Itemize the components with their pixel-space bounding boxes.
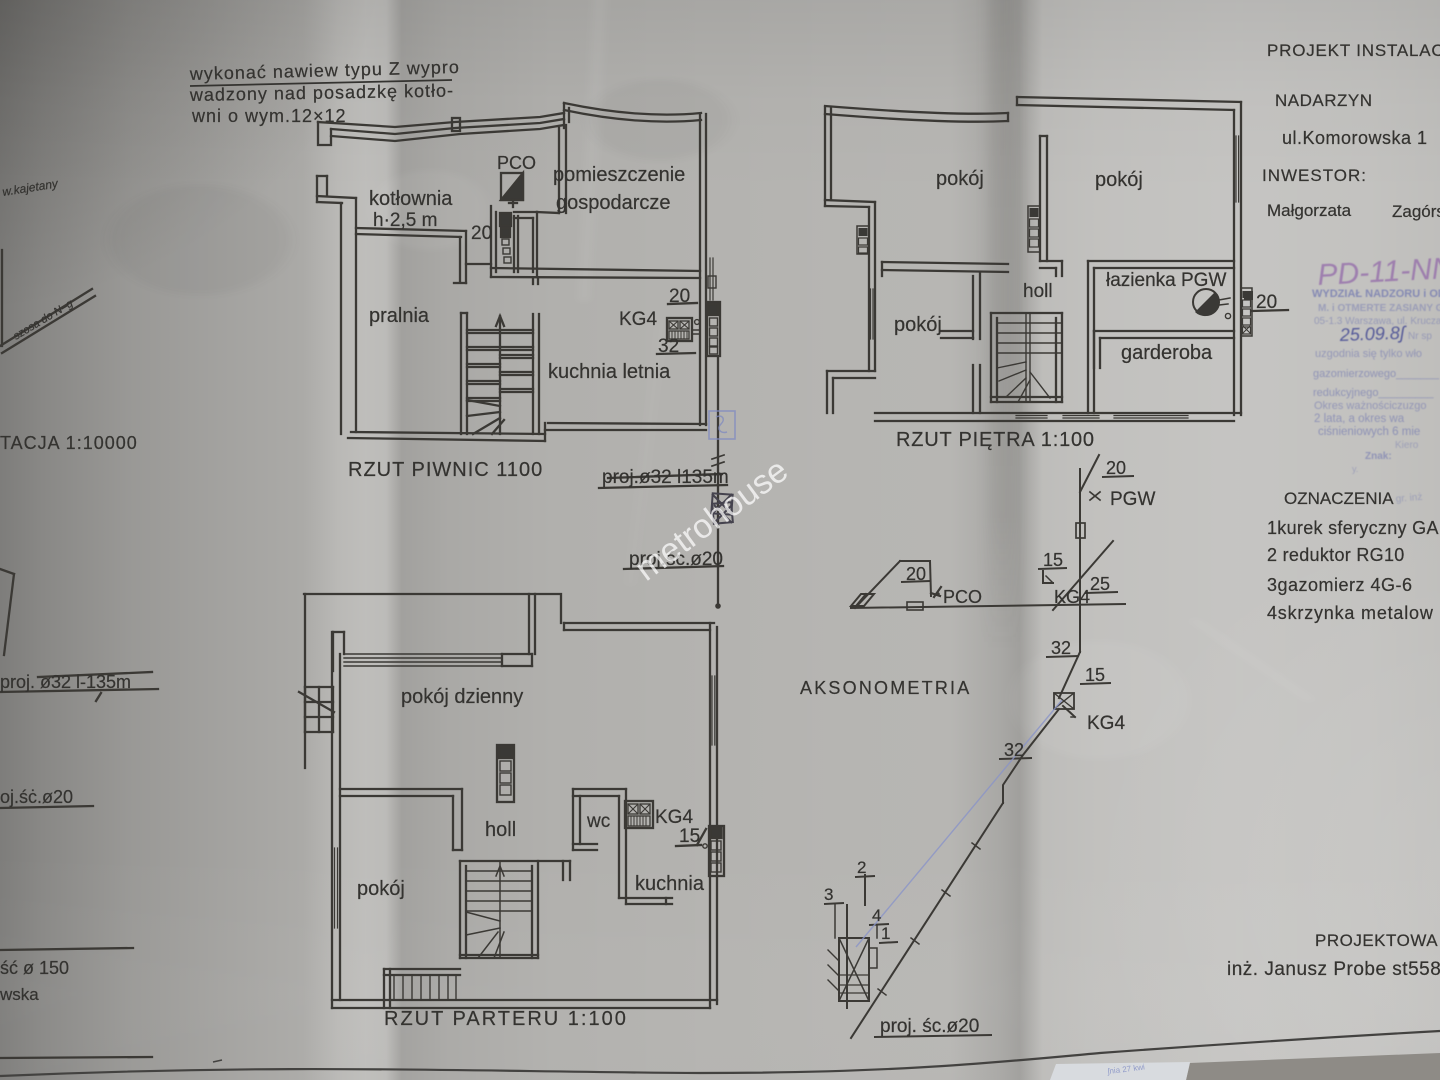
svg-text:15: 15 xyxy=(679,826,700,847)
svg-text:pralnia: pralnia xyxy=(369,305,430,327)
svg-text:pokój: pokój xyxy=(357,878,405,900)
svg-text:20: 20 xyxy=(906,564,926,584)
svg-text:h·2,5 m: h·2,5 m xyxy=(373,210,437,231)
svg-text:holl: holl xyxy=(485,819,516,841)
svg-text:Małgorzata: Małgorzata xyxy=(1267,201,1352,220)
svg-text:1kurek sferyczny GA: 1kurek sferyczny GA xyxy=(1267,518,1439,538)
svg-text:PGW: PGW xyxy=(1110,489,1155,510)
svg-text:25: 25 xyxy=(1090,574,1110,594)
svg-text:holl: holl xyxy=(1023,281,1053,302)
svg-text:25.09.8ʃ: 25.09.8ʃ xyxy=(1338,323,1408,345)
svg-text:PROJEKTOWA: PROJEKTOWA xyxy=(1315,931,1438,950)
svg-text:ść ø 150: ść ø 150 xyxy=(0,958,69,978)
svg-text:gospodarcze: gospodarcze xyxy=(556,192,671,214)
svg-text:inż. Janusz Probe st558: inż. Janusz Probe st558 xyxy=(1227,959,1440,980)
svg-text:wc: wc xyxy=(586,811,610,832)
svg-text:20: 20 xyxy=(1106,458,1126,478)
svg-text:pokój: pokój xyxy=(1095,169,1143,191)
svg-text:INWESTOR:: INWESTOR: xyxy=(1262,166,1367,185)
svg-text:PROJEKT INSTALAC: PROJEKT INSTALAC xyxy=(1267,41,1440,60)
svg-text:RZUT PARTERU 1:100: RZUT PARTERU 1:100 xyxy=(384,1008,628,1030)
svg-text:32: 32 xyxy=(1004,740,1024,760)
svg-text:kuchnia: kuchnia xyxy=(635,873,705,895)
svg-text:łazienka PGW: łazienka PGW xyxy=(1106,270,1226,291)
svg-text:pomieszczenie: pomieszczenie xyxy=(553,164,685,186)
svg-text:WYDZIAŁ NADZORU i ODK: WYDZIAŁ NADZORU i ODK xyxy=(1312,288,1440,300)
svg-text:PCO: PCO xyxy=(943,587,982,607)
svg-text:garderoba: garderoba xyxy=(1121,342,1213,364)
svg-text:gazomierzowego_______: gazomierzowego_______ xyxy=(1313,368,1440,380)
svg-text:4skrzynka metalow: 4skrzynka metalow xyxy=(1267,603,1434,623)
svg-text:gr. inż: gr. inż xyxy=(1395,492,1423,505)
svg-text:pokój: pokój xyxy=(894,314,942,336)
svg-text:3gazomierz 4G-6: 3gazomierz 4G-6 xyxy=(1267,575,1413,595)
svg-text:2 reduktor RG10: 2 reduktor RG10 xyxy=(1267,545,1405,565)
svg-text:4: 4 xyxy=(872,906,881,925)
svg-text:szosa do N–g: szosa do N–g xyxy=(11,297,76,342)
svg-text:PD-11-NN: PD-11-NN xyxy=(1317,252,1440,292)
svg-text:15: 15 xyxy=(1085,665,1105,685)
svg-text:y.: y. xyxy=(1352,464,1358,474)
svg-text:kotłownia: kotłownia xyxy=(369,188,453,210)
svg-text:pokój: pokój xyxy=(936,168,984,190)
svg-text:32: 32 xyxy=(1051,638,1071,658)
svg-text:1: 1 xyxy=(881,924,890,943)
svg-text:wadzony nad posadzkę kotło-: wadzony nad posadzkę kotło- xyxy=(189,80,454,105)
svg-text:ciśnieniowych 6 mie: ciśnieniowych 6 mie xyxy=(1318,426,1420,438)
svg-text:3: 3 xyxy=(824,885,833,904)
svg-text:KG4: KG4 xyxy=(619,309,657,330)
svg-text:proj. ø32 l-135m: proj. ø32 l-135m xyxy=(0,672,131,692)
svg-text:redukcyjnego_________: redukcyjnego_________ xyxy=(1313,387,1434,399)
svg-text:TACJA 1:10000: TACJA 1:10000 xyxy=(0,433,138,453)
svg-text:kuchnia letnia: kuchnia letnia xyxy=(548,361,671,383)
svg-text:proj. śc.ø20: proj. śc.ø20 xyxy=(880,1016,979,1037)
svg-text:ul.Komorowska 1: ul.Komorowska 1 xyxy=(1282,128,1428,148)
svg-text:oj.śċ.ø20: oj.śċ.ø20 xyxy=(0,787,73,807)
svg-text:2 lata, a okres wa: 2 lata, a okres wa xyxy=(1314,413,1405,425)
svg-text:proj.ø32 l135m: proj.ø32 l135m xyxy=(602,467,729,488)
svg-text:2: 2 xyxy=(857,858,866,877)
svg-text:32: 32 xyxy=(658,336,679,357)
svg-text:20: 20 xyxy=(669,286,690,307)
svg-text:RZUT PIĘTRA 1:100: RZUT PIĘTRA 1:100 xyxy=(896,429,1095,451)
svg-text:Nr sp: Nr sp xyxy=(1408,331,1432,342)
svg-text:15: 15 xyxy=(1043,550,1063,570)
svg-text:RZUT PIWNIC 1100: RZUT PIWNIC 1100 xyxy=(348,459,543,481)
svg-text:Okres ważnościczuzgo: Okres ważnościczuzgo xyxy=(1314,400,1427,412)
svg-text:pokój dzienny: pokój dzienny xyxy=(401,686,523,708)
svg-text:KG4: KG4 xyxy=(1087,713,1125,734)
svg-text:Zagórs: Zagórs xyxy=(1392,202,1440,221)
svg-text:PCO: PCO xyxy=(497,153,536,173)
svg-text:wska: wska xyxy=(0,985,39,1004)
svg-text:w.kajetany: w.kajetany xyxy=(1,176,60,199)
svg-text:uzgodnia się tylko wło: uzgodnia się tylko wło xyxy=(1315,348,1422,360)
svg-text:NADARZYN: NADARZYN xyxy=(1275,91,1373,110)
svg-text:OZNACZENIA: OZNACZENIA xyxy=(1284,489,1394,508)
svg-text:Kiero: Kiero xyxy=(1395,440,1419,451)
svg-text:20: 20 xyxy=(471,223,492,244)
svg-text:KG4: KG4 xyxy=(655,807,693,828)
svg-text:M. i OTMERTE ZASIANY G: M. i OTMERTE ZASIANY G xyxy=(1318,303,1440,314)
svg-text:Znak:: Znak: xyxy=(1365,451,1392,462)
svg-text:20: 20 xyxy=(1256,292,1277,313)
svg-text:KG4: KG4 xyxy=(1054,587,1090,607)
svg-text:AKSONOMETRIA: AKSONOMETRIA xyxy=(800,678,971,698)
